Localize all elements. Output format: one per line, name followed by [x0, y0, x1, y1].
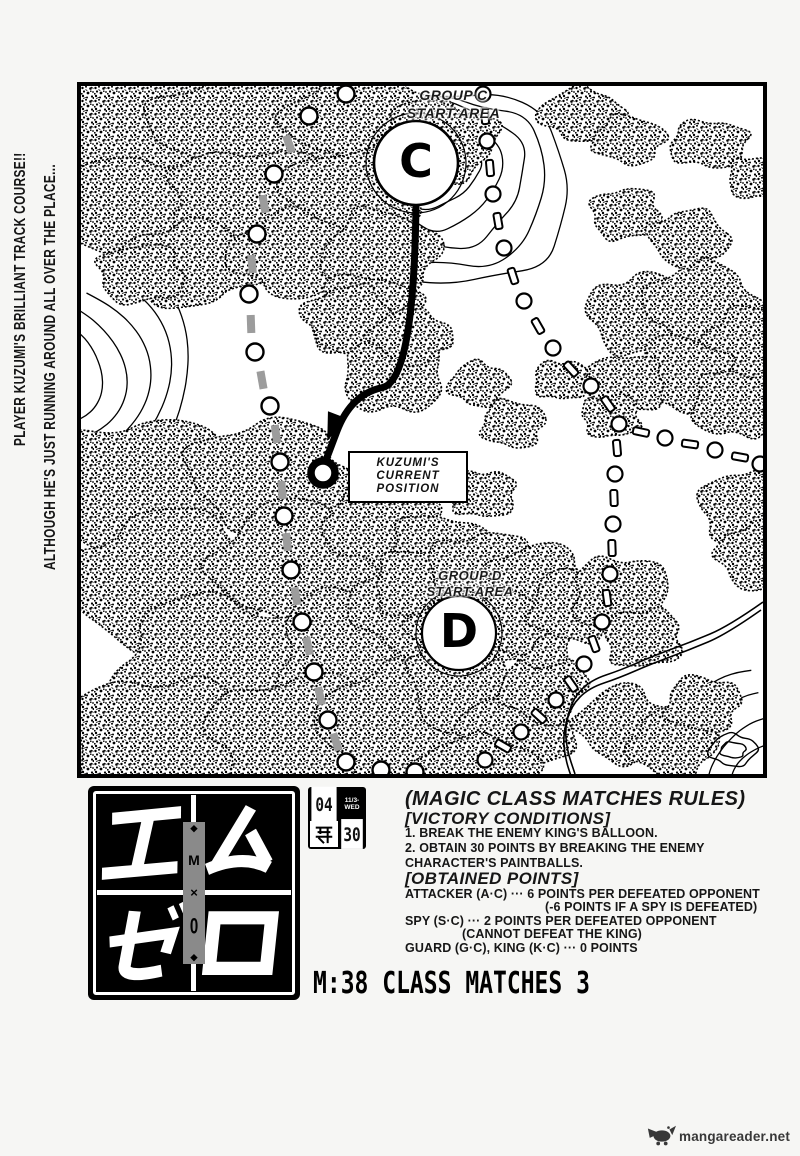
attacker-points: ATTACKER (A·C) ··· 6 POINTS PER DEFEATED… — [405, 887, 760, 901]
spy-note: (CANNOT DEFEAT THE KING) — [462, 927, 642, 941]
guard-king-points: GUARD (G·C), KING (K·C) ··· 0 POINTS — [405, 941, 638, 955]
victory-item-2: 2. OBTAIN 30 POINTS BY BREAKING THE ENEM… — [405, 841, 705, 855]
victory-item-2b: CHARACTER'S PAINTBALLS. — [405, 856, 583, 870]
katakana-ro-glyph-icon — [199, 898, 287, 986]
current-position-label-box: KUZUMI'S CURRENT POSITION — [348, 451, 468, 503]
position-ring-icon — [311, 461, 335, 485]
katakana-ze-glyph-icon — [101, 898, 189, 986]
track-course-map: GROUP C START AREA C GROUP D START AREA … — [77, 82, 767, 778]
d-badge: D — [440, 604, 478, 658]
rules-title: (MAGIC CLASS MATCHES RULES) — [405, 788, 745, 811]
chapter-title: M:38 CLASS MATCHES 3 — [313, 967, 590, 1001]
katakana-e-glyph-icon — [101, 799, 189, 887]
group-c-start-label: GROUP C START AREA — [376, 87, 531, 122]
margin-note-1: PLAYER KUZUMI'S BRILLIANT TRACK COURSE!! — [12, 152, 29, 446]
points-header: [OBTAINED POINTS] — [405, 869, 579, 889]
watermark: mangareader.net — [646, 1124, 790, 1148]
series-logo: ◆ M × 0 ◆ — [88, 786, 300, 1000]
spy-points: SPY (S·C) ··· 2 POINTS PER DEFEATED OPPO… — [405, 914, 717, 928]
c-badge: C — [399, 134, 433, 188]
map-canvas — [81, 86, 763, 774]
victory-item-1: 1. BREAK THE ENEMY KING'S BALLOON. — [405, 826, 658, 840]
group-d-start-label: GROUP D START AREA — [399, 568, 541, 601]
diamond-icon: ◆ — [191, 824, 198, 833]
stamp-time: 04 — [311, 787, 336, 822]
stamp-kanji-glyph-icon — [310, 821, 338, 847]
margin-note-2: ALTHOUGH HE'S JUST RUNNING AROUND ALL OV… — [42, 164, 59, 570]
manga-page: PLAYER KUZUMI'S BRILLIANT TRACK COURSE!!… — [0, 0, 800, 1156]
diamond-icon: ◆ — [191, 953, 198, 962]
mangareader-mascot-icon — [646, 1124, 676, 1148]
logo-center-bar: ◆ M × 0 ◆ — [183, 822, 205, 964]
katakana-mu-glyph-icon — [199, 799, 287, 887]
attacker-note: (-6 POINTS IF A SPY IS DEFEATED) — [545, 900, 757, 914]
chapter-stamp: 04 11/3- WED 30 — [308, 787, 366, 849]
stamp-number: 30 — [341, 819, 363, 849]
stamp-date: 11/3- WED — [340, 789, 364, 819]
